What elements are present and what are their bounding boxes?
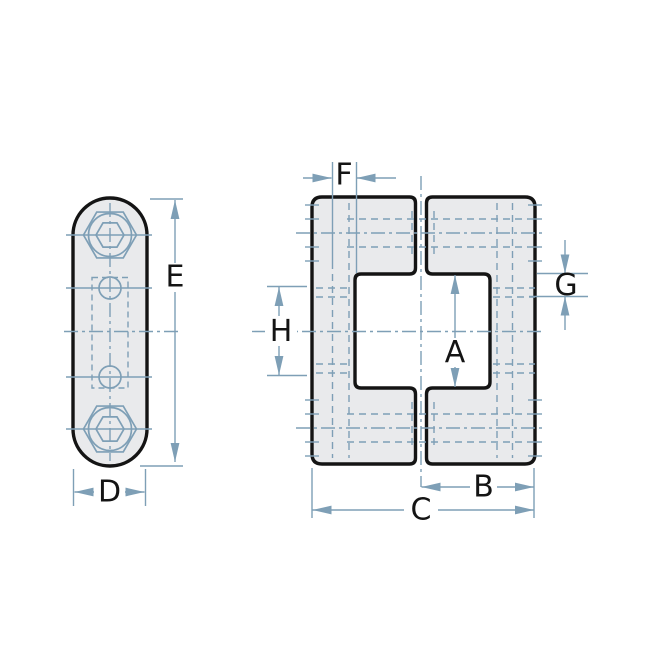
dim-label-a: A bbox=[445, 335, 466, 370]
dim-g: G bbox=[529, 240, 588, 330]
front-view-left-leaf bbox=[312, 197, 416, 464]
dim-d: D bbox=[74, 469, 146, 510]
dim-label-f: F bbox=[335, 158, 352, 193]
dim-label-c: C bbox=[411, 493, 432, 528]
dim-f: F bbox=[303, 158, 396, 193]
dim-h: H bbox=[265, 287, 307, 376]
technical-drawing: E D F G H bbox=[0, 0, 670, 670]
front-view-right-leaf bbox=[427, 197, 536, 464]
dim-label-b: B bbox=[473, 470, 494, 505]
dim-b: B bbox=[422, 470, 535, 505]
dim-c: C bbox=[312, 468, 534, 528]
dim-label-g: G bbox=[554, 268, 577, 303]
dim-label-h: H bbox=[270, 314, 293, 349]
dim-label-e: E bbox=[166, 260, 185, 295]
dim-label-d: D bbox=[98, 475, 121, 510]
drawing-canvas: E D F G H bbox=[0, 0, 670, 670]
